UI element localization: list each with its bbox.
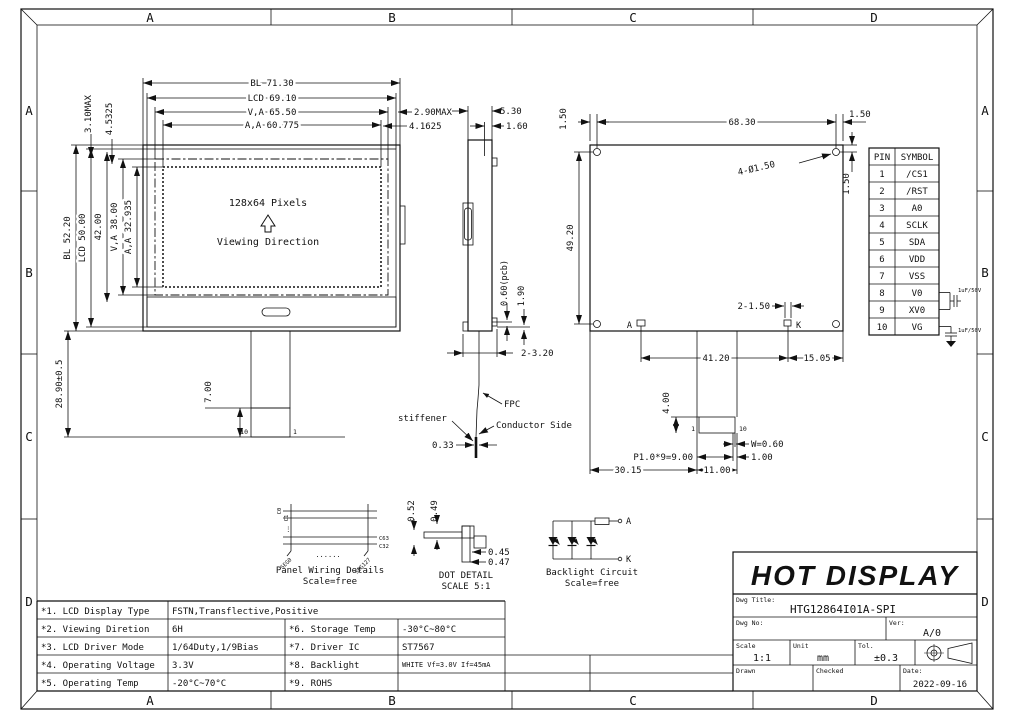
- conductor-side-label: Conductor Side: [496, 421, 572, 431]
- spec-value: -20°C~70°C: [172, 679, 226, 689]
- dot-dim-045: 0.45: [488, 548, 510, 558]
- cap2-label: 1uF/50V: [958, 328, 982, 334]
- dot-detail-title: DOT DETAIL: [439, 571, 493, 581]
- dim-530: 5.30: [500, 107, 522, 117]
- pin-symbol: V0: [912, 289, 923, 299]
- dim-2-150: 2-1.50: [737, 302, 770, 312]
- wiring-vdots: ⋮: [285, 525, 292, 533]
- anode-label: A: [627, 321, 632, 331]
- wiring-title: Panel Wiring Details: [276, 566, 384, 576]
- dwg-no-label: Dwg No:: [736, 619, 763, 627]
- zone-letter-top-d: D: [870, 10, 878, 25]
- pin-symbol: XV0: [909, 306, 925, 316]
- backlight-cathode: K: [626, 555, 632, 565]
- dim-4920: 49.20: [566, 224, 576, 251]
- pin-symbol: VG: [912, 323, 923, 333]
- dot-dim-052: 0.52: [407, 500, 417, 522]
- spec-value: ST7567: [402, 643, 435, 653]
- zone-letter-left-b: B: [25, 265, 33, 280]
- spec-value: WHITE Vf=3.0V If=45mA: [402, 661, 491, 669]
- spec-label: *5. Operating Temp: [41, 679, 139, 689]
- stiffener-label: stiffener: [398, 414, 447, 424]
- spec-label: *3. LCD Driver Mode: [41, 643, 144, 653]
- projection-symbol-icon: [924, 643, 972, 664]
- wiring-scale: Scale=free: [303, 577, 357, 587]
- dim-4120: 41.20: [702, 354, 729, 364]
- rear-view: A K 68.30 1.50 1.50 1.50 4-Ø1.50 49.20 2…: [559, 108, 871, 476]
- scale-label: Scale: [736, 642, 756, 650]
- dim-45325: 4.5325: [105, 103, 115, 136]
- spec-label: *2. Viewing Diretion: [41, 625, 149, 635]
- front-fpc-pin1: 1: [293, 428, 297, 436]
- pin-number: 9: [879, 306, 884, 316]
- dim-holes: 4-Ø1.50: [737, 159, 776, 178]
- dim-va-height: V,A 38.00: [110, 203, 120, 252]
- zone-letter-top-b: B: [388, 10, 396, 25]
- unit-label: Unit: [793, 642, 809, 650]
- date-label: Date:: [903, 667, 923, 675]
- spec-label: *4. Operating Voltage: [41, 661, 155, 671]
- pin-table: PIN SYMBOL 1/CS1 2/RST 3A0 4SCLK 5SDA 6V…: [869, 148, 982, 347]
- ver-value: A/0: [923, 628, 941, 639]
- zone-letter-bottom-a: A: [146, 693, 154, 708]
- dim-160: 1.60: [506, 122, 528, 132]
- dim-1505: 15.05: [803, 354, 830, 364]
- pin-number: 6: [879, 255, 884, 265]
- zone-letter-bottom-d: D: [870, 693, 878, 708]
- dim-290max: 2.90MAX: [414, 108, 453, 118]
- dim-2890: 28.90±0.5: [55, 360, 65, 409]
- rear-fpc-pin10: 10: [739, 425, 747, 433]
- backlight-circuit: A K Backlight Circuit Scale=free: [546, 517, 638, 589]
- backlight-title: Backlight Circuit: [546, 568, 638, 578]
- dot-dim-049: 0.49: [430, 500, 440, 522]
- pin-symbol: /RST: [906, 187, 928, 197]
- led-icon: [568, 537, 579, 546]
- spec-value: FSTN,Transflective,Positive: [172, 607, 318, 617]
- dot-dim-047: 0.47: [488, 558, 510, 568]
- pin-header: PIN: [874, 153, 890, 163]
- spec-label: *7. Driver IC: [289, 643, 359, 653]
- pin-number: 2: [879, 187, 884, 197]
- backlight-scale: Scale=free: [565, 579, 619, 589]
- led-icon: [587, 537, 598, 546]
- dim-190: 1.90: [517, 286, 527, 306]
- fpc-label: FPC: [504, 400, 520, 410]
- zone-letter-right-b: B: [981, 265, 989, 280]
- pixels-label: 128x64 Pixels: [229, 198, 307, 209]
- zone-letter-right-c: C: [981, 429, 989, 444]
- unit-value: mm: [817, 653, 829, 664]
- pin-number: 1: [879, 170, 884, 180]
- dim-1100: 11.00: [703, 466, 730, 476]
- dim-6830: 68.30: [728, 118, 755, 128]
- spec-table: *1. LCD Display Type FSTN,Transflective,…: [37, 601, 733, 691]
- wiring-c0: C0: [277, 508, 283, 515]
- title-block: HOT DISPLAY Dwg Title: HTG12864I01A-SPI …: [733, 552, 977, 691]
- zone-letter-right-d: D: [981, 594, 989, 609]
- cathode-label: K: [796, 321, 802, 331]
- wiring-c63: C63: [379, 536, 389, 542]
- spec-label: *9. ROHS: [289, 679, 332, 689]
- pin-symbol: SDA: [909, 238, 926, 248]
- engineering-drawing: A B C D A B C D A B C D A B C D 128x64 P…: [0, 0, 1014, 718]
- dim-033: 0.33: [432, 441, 454, 451]
- cap1-label: 1uF/50V: [958, 288, 982, 294]
- dim-lcd-height: LCD 50.00: [78, 214, 88, 263]
- dim-w060: W=0.60: [751, 440, 784, 450]
- capacitor-circuit: 1uF/50V 1uF/50V: [939, 288, 982, 347]
- company-name: HOT DISPLAY: [751, 560, 959, 591]
- spec-value: 3.3V: [172, 661, 194, 671]
- dim-2-320: 2-3.20: [521, 349, 554, 359]
- pin-symbol: /CS1: [906, 170, 928, 180]
- wiring-dots: ......: [315, 551, 340, 559]
- spec-value: -30°C~80°C: [402, 625, 456, 635]
- pin-number: 7: [879, 272, 884, 282]
- scale-value: 1:1: [753, 653, 771, 664]
- ground-icon: [946, 341, 956, 347]
- drawn-label: Drawn: [736, 667, 756, 675]
- panel-wiring-detail: C0 C1 ⋮ C63 C32 SEG0 SEG127 ...... Panel…: [276, 504, 389, 587]
- viewing-direction-label: Viewing Direction: [217, 237, 319, 248]
- ver-label: Ver:: [889, 619, 905, 627]
- side-view: 5.30 1.60 0.60(pcb) 1.90 2-3.20 FPC stif…: [398, 106, 572, 458]
- dim-bl-width: BL 71.30: [250, 79, 293, 89]
- pin-number: 8: [879, 289, 884, 299]
- zone-letter-left-c: C: [25, 429, 33, 444]
- pin-number: 5: [879, 238, 884, 248]
- front-view: 128x64 Pixels Viewing Direction 10 1 BL …: [55, 78, 453, 437]
- dot-detail-scale: SCALE 5:1: [442, 582, 491, 592]
- dim-bl-height: BL 52.20: [63, 216, 73, 259]
- dim-310max: 3.10MAX: [84, 94, 94, 133]
- pin-number: 10: [877, 323, 888, 333]
- dim-pitch: P1.0*9=9.00: [633, 453, 693, 463]
- checked-label: Checked: [816, 667, 843, 675]
- dim-400: 4.00: [662, 392, 672, 414]
- led-icon: [549, 537, 560, 546]
- dim-lcd-width: LCD 69.10: [248, 94, 297, 104]
- dim-060pcb: 0.60(pcb): [500, 260, 510, 306]
- dot-detail: 0.52 0.49 0.45 0.47 DOT DETAIL SCALE 5:1: [407, 500, 510, 592]
- dim-150-right: 1.50: [849, 110, 871, 120]
- zone-letter-top-c: C: [629, 10, 637, 25]
- dim-150-left: 1.50: [559, 108, 569, 130]
- rear-fpc-pin1: 1: [691, 425, 695, 433]
- spec-value: 1/64Duty,1/9Bias: [172, 643, 259, 653]
- zone-letter-bottom-c: C: [629, 693, 637, 708]
- dwg-title-value: HTG12864I01A-SPI: [790, 603, 896, 616]
- wiring-c1: C1: [284, 515, 290, 522]
- dim-aa-width: A,A 60.775: [245, 121, 299, 131]
- zone-letter-top-a: A: [146, 10, 154, 25]
- pin-symbol: VDD: [909, 255, 925, 265]
- zone-letter-right-a: A: [981, 103, 989, 118]
- pin-symbol: A0: [912, 204, 923, 214]
- dim-42: 42.00: [94, 213, 104, 240]
- dim-700: 7.00: [204, 381, 214, 403]
- dwg-title-label: Dwg Title:: [736, 596, 775, 604]
- dim-3015: 30.15: [614, 466, 641, 476]
- zone-letter-left-d: D: [25, 594, 33, 609]
- spec-label: *8. Backlight: [289, 661, 359, 671]
- tol-label: Tol.: [858, 642, 874, 650]
- tol-value: ±0.3: [874, 653, 898, 664]
- viewing-direction-arrow-icon: [261, 215, 275, 232]
- date-value: 2022-09-16: [913, 680, 967, 690]
- spec-label: *1. LCD Display Type: [41, 607, 149, 617]
- spec-label: *6. Storage Temp: [289, 625, 376, 635]
- dim-va-width: V,A 65.50: [248, 108, 297, 118]
- symbol-header: SYMBOL: [901, 153, 934, 163]
- pin-symbol: VSS: [909, 272, 925, 282]
- dim-150-vert: 1.50: [842, 173, 852, 195]
- pin-number: 3: [879, 204, 884, 214]
- pin-number: 4: [879, 221, 884, 231]
- front-fpc-pin10: 10: [240, 428, 248, 436]
- dim-aa-height: A,A 32.935: [124, 200, 134, 254]
- zone-letter-left-a: A: [25, 103, 33, 118]
- zone-letter-bottom-b: B: [388, 693, 396, 708]
- spec-value: 6H: [172, 625, 183, 635]
- backlight-anode: A: [626, 517, 631, 527]
- dim-100: 1.00: [751, 453, 773, 463]
- wiring-c32: C32: [379, 544, 389, 550]
- dim-41625: 4.1625: [409, 122, 442, 132]
- pin-symbol: SCLK: [906, 221, 928, 231]
